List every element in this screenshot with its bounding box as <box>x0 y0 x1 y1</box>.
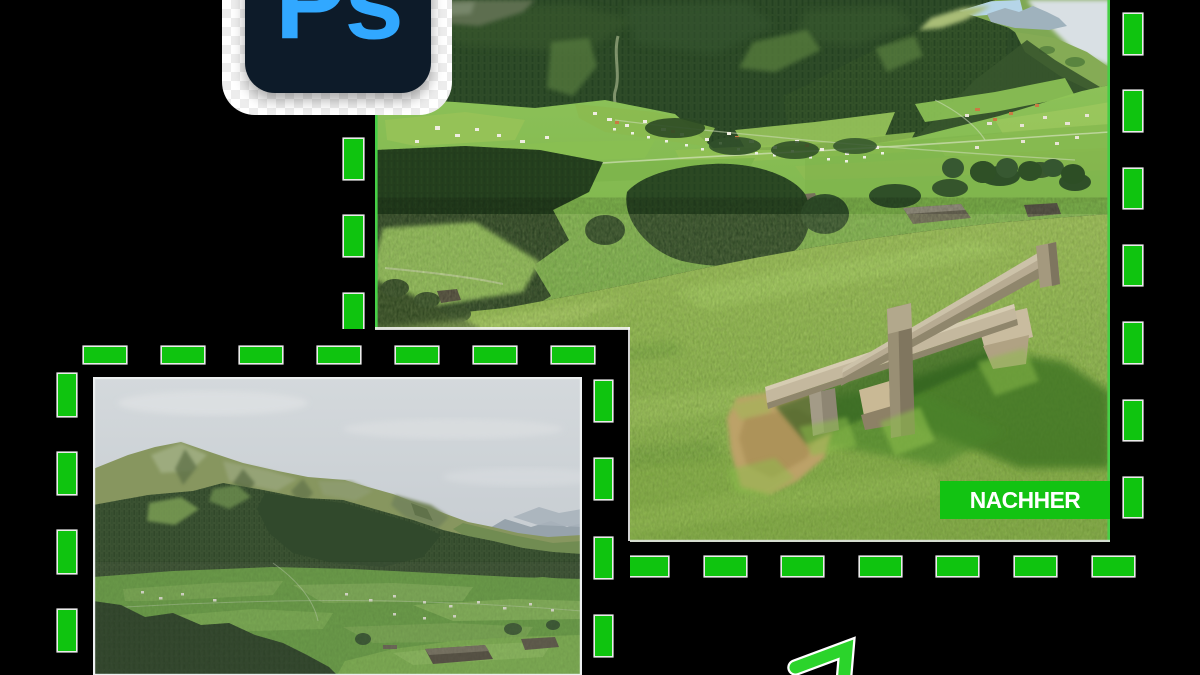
svg-text:Ps: Ps <box>275 0 402 62</box>
